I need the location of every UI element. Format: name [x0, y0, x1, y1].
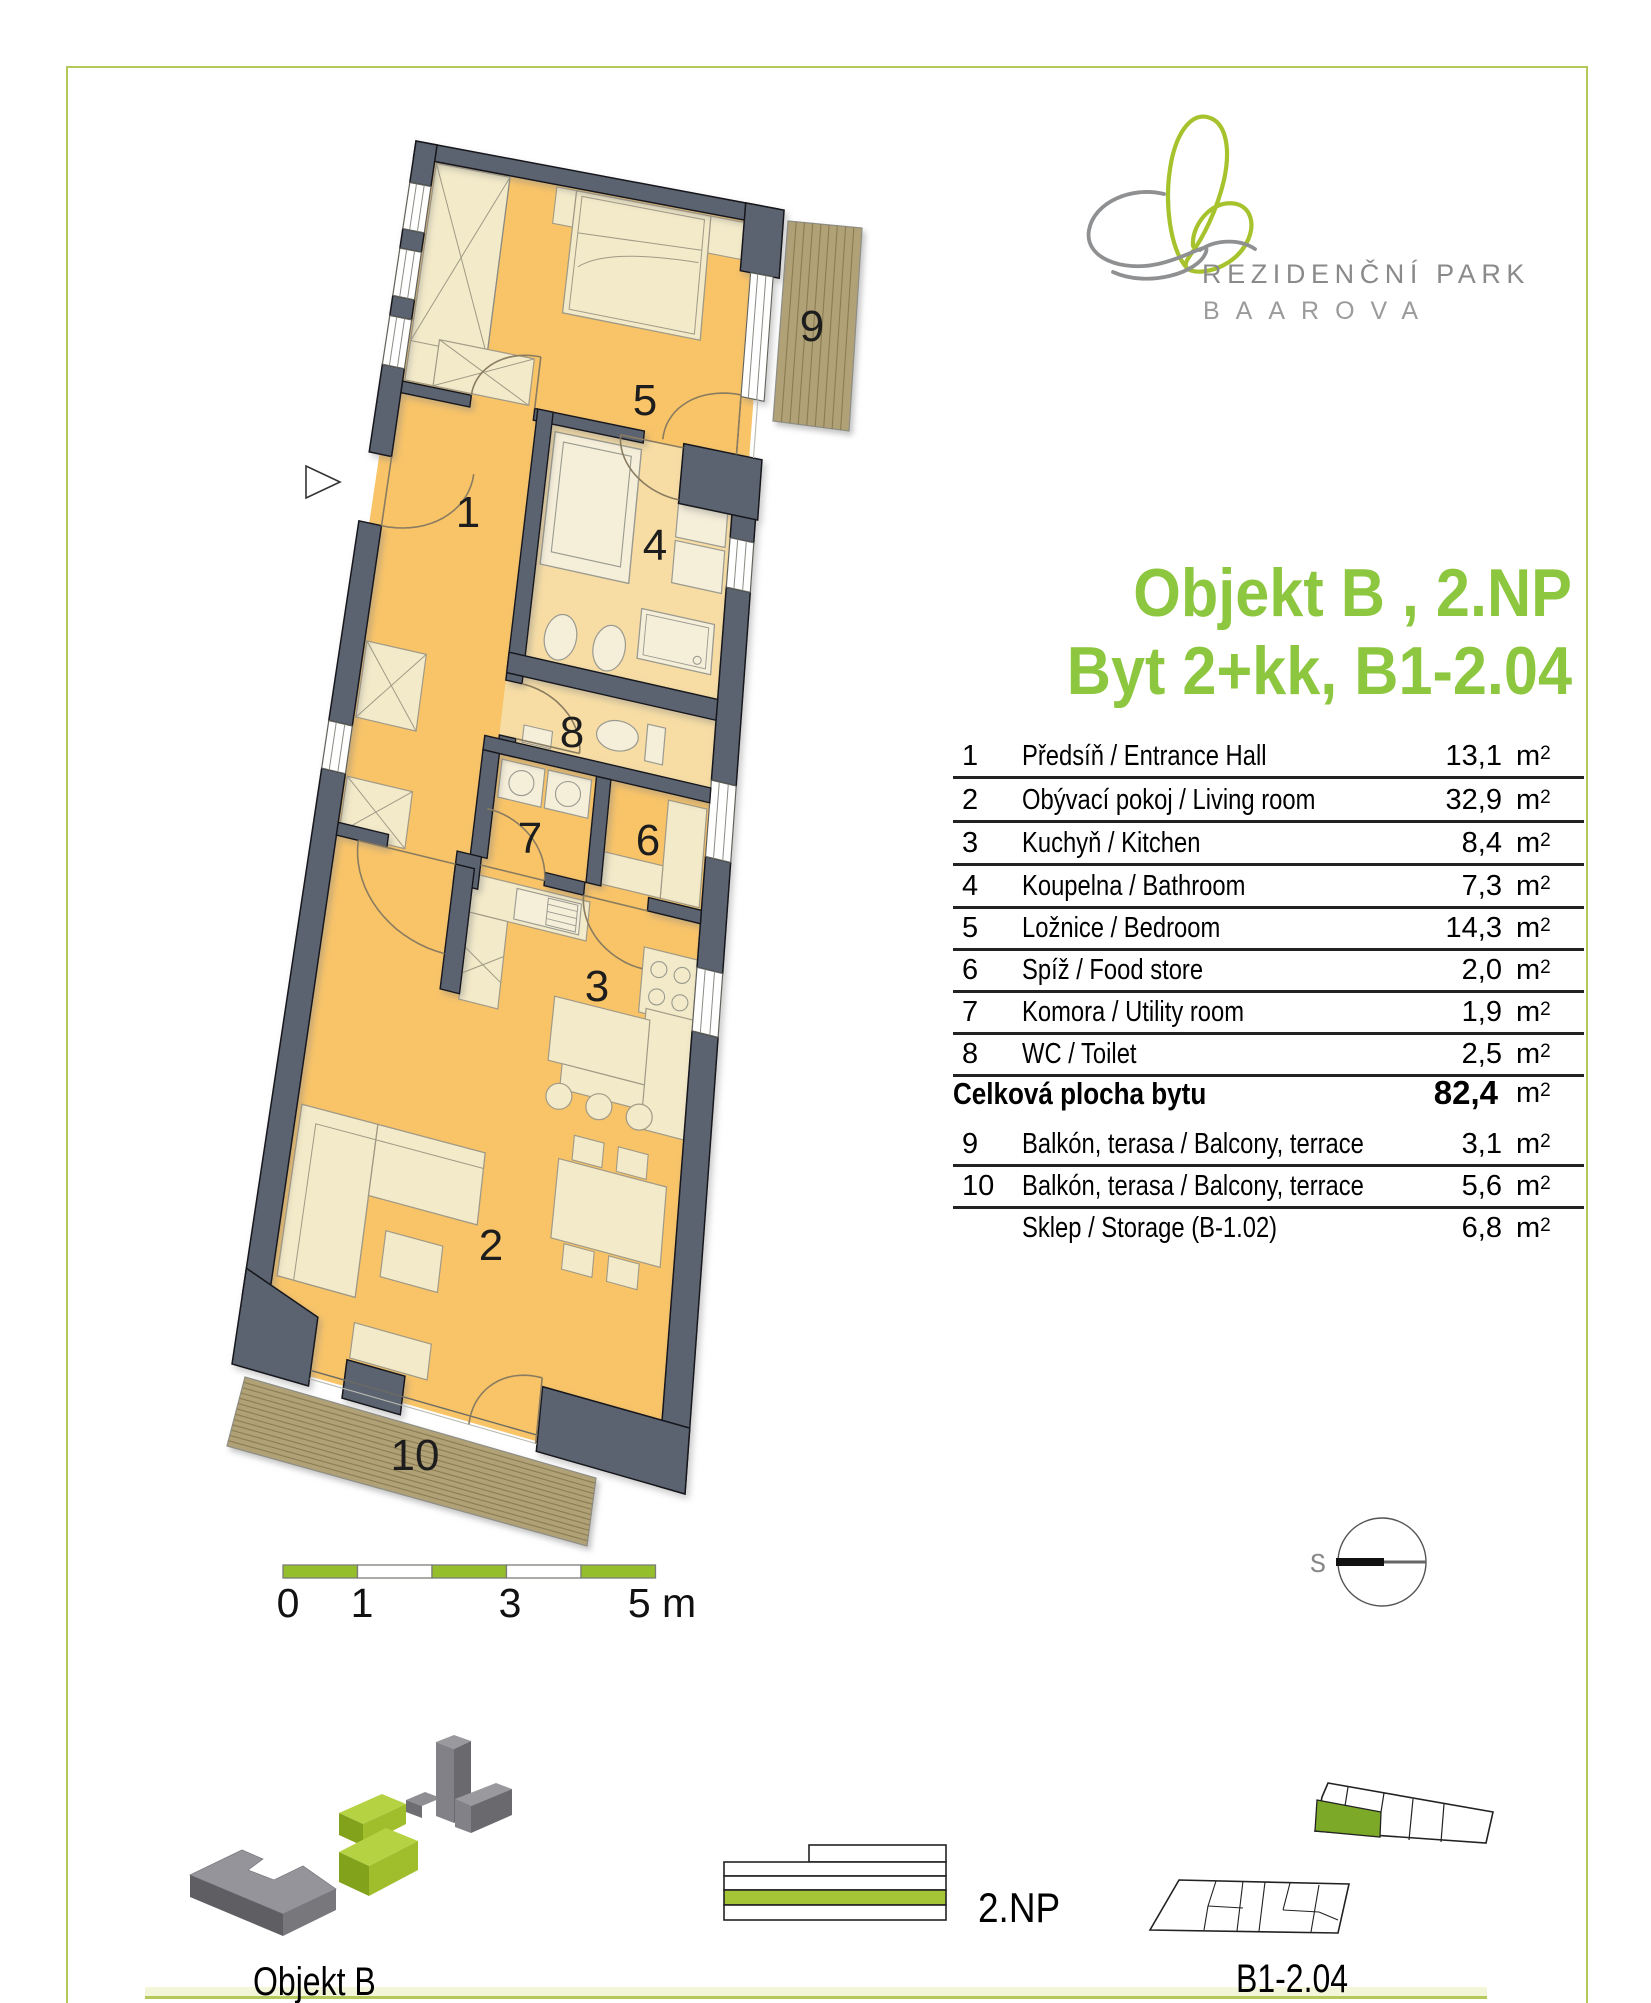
- svg-text:2: 2: [479, 1221, 503, 1270]
- svg-text:5 m: 5 m: [628, 1580, 696, 1626]
- svg-text:3: 3: [585, 962, 609, 1011]
- svg-text:1: 1: [456, 488, 480, 537]
- svg-text:7: 7: [518, 814, 542, 863]
- svg-text:4: 4: [643, 521, 667, 570]
- svg-text:3: 3: [499, 1580, 522, 1626]
- svg-text:1: 1: [351, 1580, 374, 1626]
- svg-text:5: 5: [633, 376, 657, 425]
- svg-text:8: 8: [560, 708, 584, 757]
- svg-text:9: 9: [800, 302, 824, 351]
- svg-text:0: 0: [277, 1580, 300, 1626]
- svg-text:6: 6: [636, 816, 660, 865]
- svg-text:10: 10: [391, 1431, 440, 1480]
- svg-text:S: S: [1310, 1551, 1326, 1581]
